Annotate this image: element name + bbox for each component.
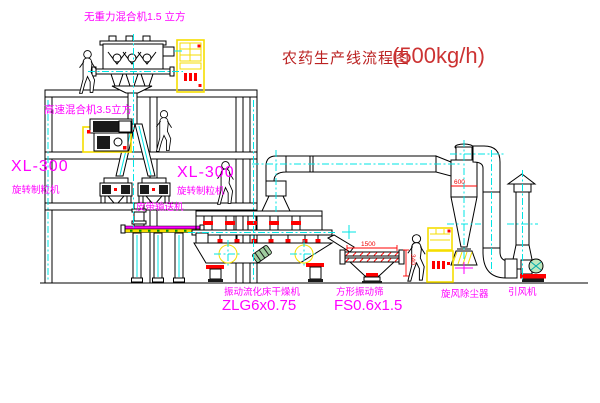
induced-draft-fan <box>505 259 546 282</box>
fluid-bed-dryer <box>192 211 332 282</box>
label-belt-conveyor: 皮带输送机 <box>136 203 184 213</box>
dim-cyclone-diameter: 600 <box>454 179 465 186</box>
label-dryer-model: ZLG6x0.75 <box>222 298 296 313</box>
label-granulator-left: 旋转制粒机 <box>12 186 60 196</box>
diagram-title-capacity: (500kg/h) <box>392 45 485 67</box>
label-granulator-mid: 旋转制粒机 <box>177 187 225 197</box>
control-cabinet-1 <box>177 40 204 92</box>
dim-sieve-length: 1500 <box>361 241 376 248</box>
label-xl300-mid: XL-300 <box>177 165 235 181</box>
label-high-speed-mixer: 高速混合机3.5立方 <box>44 105 132 116</box>
label-cyclone: 旋风除尘器 <box>441 290 489 300</box>
label-gravity-free-mixer: 无重力混合机1.5 立方 <box>84 12 186 23</box>
label-xl300-left: XL-300 <box>11 159 69 175</box>
label-sieve-model: FS0.6x1.5 <box>334 298 402 313</box>
dim-sieve-height: 340 <box>409 254 416 265</box>
stack <box>508 174 535 269</box>
diagram-title: 农药生产线流程图 <box>282 51 410 66</box>
worker-floor2 <box>156 111 171 152</box>
flow-diagram-canvas: 1500 340 600 农药生产线流程图 (500kg/h) 无重力混合机1.… <box>0 0 600 403</box>
outlet-duct <box>473 146 512 278</box>
high-speed-mixer <box>83 119 132 152</box>
control-cabinet-2 <box>427 228 453 282</box>
label-fan: 引风机 <box>508 288 537 298</box>
